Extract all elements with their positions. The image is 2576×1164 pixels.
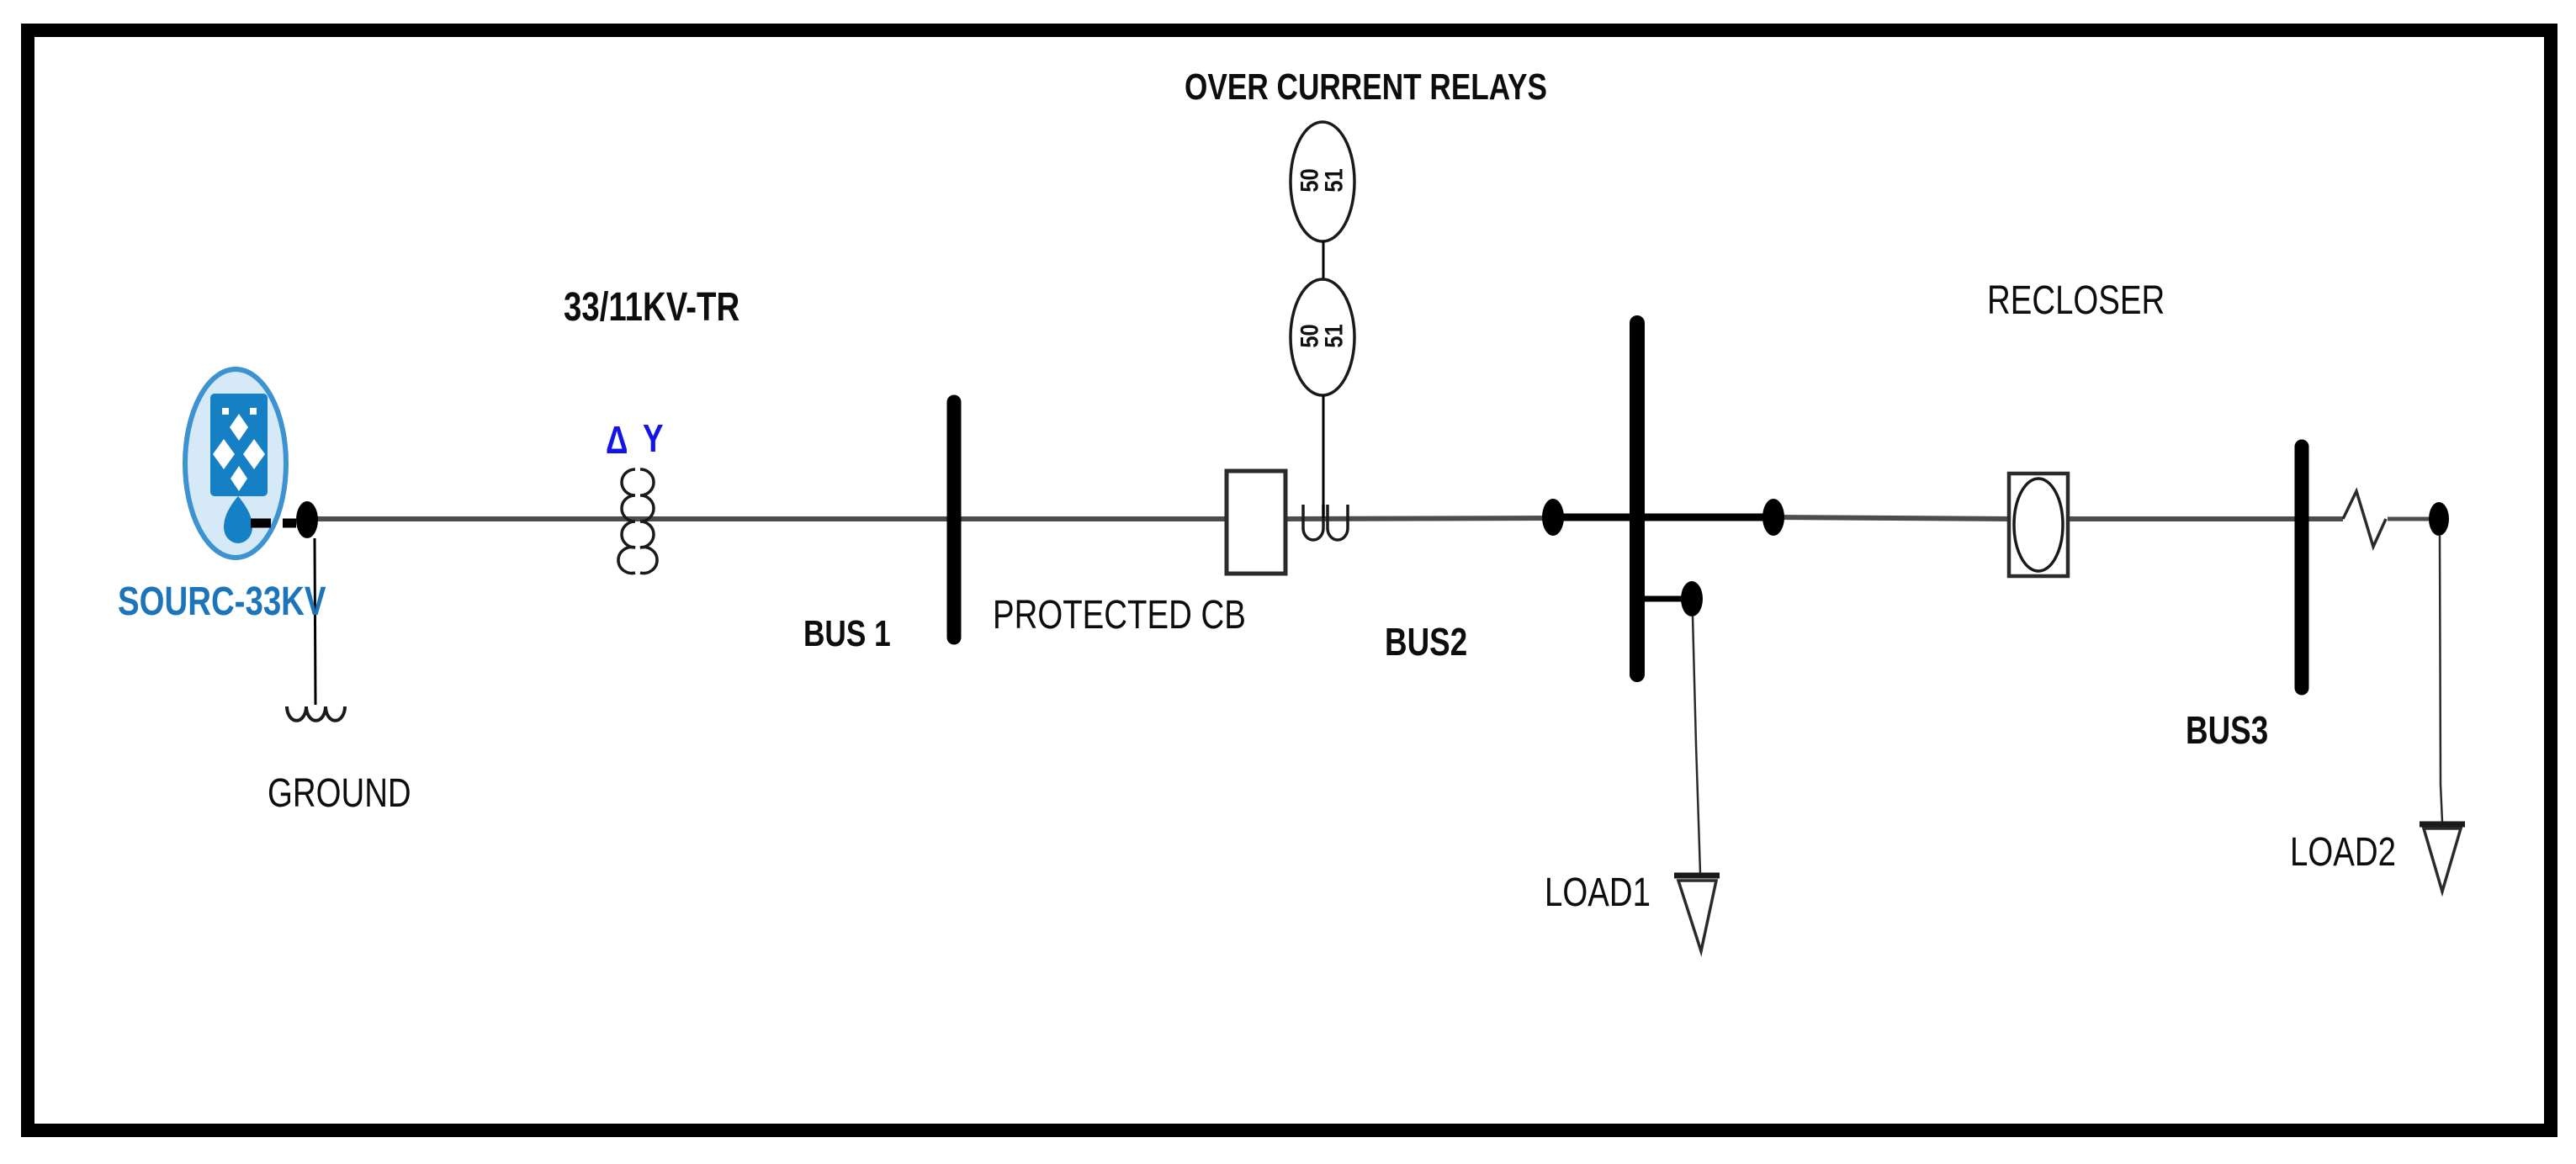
current-transformer-icon[interactable]	[1303, 505, 1348, 540]
oneline-diagram-graphics	[0, 0, 2576, 1164]
load2-label: LOAD2	[2290, 833, 2396, 873]
node-bus2-right	[1762, 499, 1784, 536]
line-zigzag-icon	[2343, 491, 2386, 547]
oneline-diagram-canvas: SOURC-33KV GROUND 33/11KV-TR BUS 1 PROTE…	[0, 0, 2576, 1164]
node-line-end	[2429, 502, 2449, 536]
ground-coil-icon	[287, 706, 345, 721]
source-label: SOURC-33KV	[118, 582, 326, 622]
relay-top-device-numbers: 50 51	[1299, 157, 1347, 203]
transformer-label: 33/11KV-TR	[564, 288, 739, 328]
node-load1-tap	[1681, 581, 1703, 616]
ground-label: GROUND	[268, 774, 411, 814]
bus2-label: BUS2	[1385, 622, 1467, 661]
load2-arrow-icon	[2424, 828, 2461, 892]
bus1-label: BUS 1	[803, 616, 891, 653]
load1-branch	[1644, 599, 1700, 873]
recloser-symbol[interactable]	[2009, 474, 2068, 576]
load1-label: LOAD1	[1545, 873, 1651, 913]
protected-cb-symbol[interactable]	[1227, 471, 1285, 574]
node-bus2-left	[1542, 499, 1564, 536]
bus3-label: BUS3	[2186, 711, 2268, 749]
delta-winding-symbol: Δ	[606, 421, 628, 459]
load1-symbol[interactable]	[1674, 876, 1720, 951]
recloser-label: RECLOSER	[1987, 281, 2165, 321]
load2-symbol[interactable]	[2420, 536, 2465, 892]
protected-cb-label: PROTECTED CB	[993, 595, 1246, 636]
recloser-ellipse-icon	[2014, 479, 2063, 571]
load1-arrow-icon	[1678, 881, 1716, 951]
node-source	[296, 501, 318, 538]
over-current-relays-label: OVER CURRENT RELAYS	[1185, 69, 1547, 106]
power-source-icon[interactable]	[185, 369, 296, 558]
wye-winding-symbol: Y	[643, 419, 664, 458]
relay-bottom-device-numbers: 50 51	[1299, 313, 1347, 358]
ground-symbol[interactable]	[287, 538, 345, 721]
